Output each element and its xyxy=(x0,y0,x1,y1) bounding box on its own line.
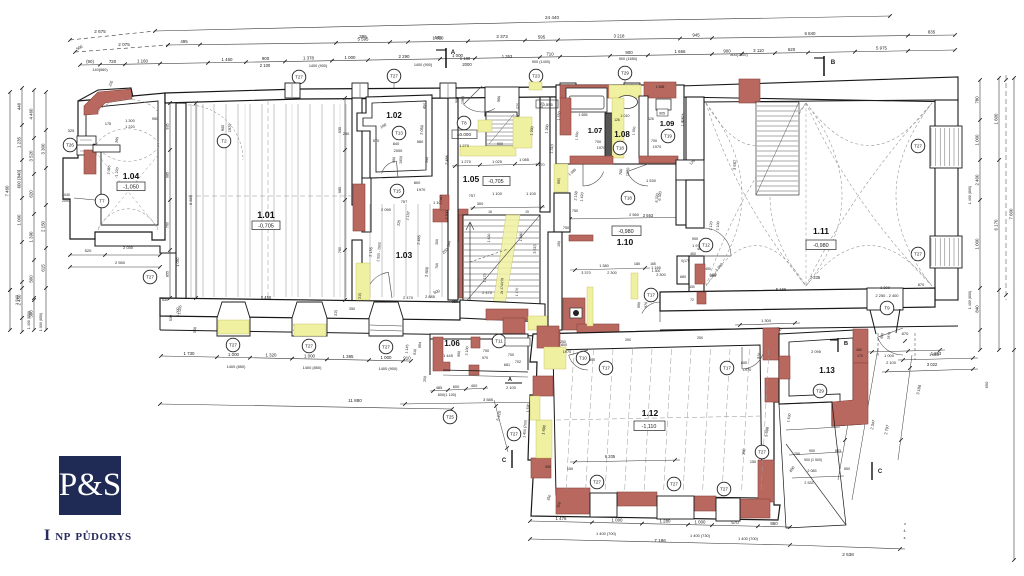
svg-text:800: 800 xyxy=(414,180,421,185)
svg-text:T23: T23 xyxy=(532,74,540,79)
svg-text:(90): (90) xyxy=(86,59,94,64)
svg-text:485: 485 xyxy=(436,385,443,390)
svg-text:700: 700 xyxy=(619,169,624,176)
svg-text:3 300: 3 300 xyxy=(40,143,45,155)
svg-text:2 158: 2 158 xyxy=(574,191,579,201)
svg-text:250: 250 xyxy=(423,376,428,382)
svg-text:5 450: 5 450 xyxy=(261,295,272,300)
svg-text:150: 150 xyxy=(689,285,695,289)
svg-text:T18: T18 xyxy=(624,196,632,201)
svg-text:1.12: 1.12 xyxy=(642,408,659,418)
svg-text:1 180: 1 180 xyxy=(460,56,471,61)
svg-text:1 220: 1 220 xyxy=(115,167,120,176)
svg-text:1 880: 1 880 xyxy=(519,232,523,241)
svg-text:780: 780 xyxy=(974,96,979,104)
svg-text:6 840: 6 840 xyxy=(805,31,817,36)
svg-text:1 200: 1 200 xyxy=(545,124,550,134)
svg-text:2 485: 2 485 xyxy=(417,235,422,245)
svg-text:2 095: 2 095 xyxy=(811,349,821,354)
svg-text:395: 395 xyxy=(359,34,367,39)
svg-text:650: 650 xyxy=(984,381,989,388)
svg-text:350: 350 xyxy=(349,307,355,311)
svg-text:2 250 - 2 400: 2 250 - 2 400 xyxy=(876,293,900,298)
svg-text:900: 900 xyxy=(692,237,698,241)
svg-text:935: 935 xyxy=(338,127,342,133)
svg-text:T27: T27 xyxy=(914,252,922,257)
svg-text:600: 600 xyxy=(453,384,460,389)
svg-text:T25: T25 xyxy=(446,415,454,420)
svg-text:1 000: 1 000 xyxy=(884,353,895,358)
svg-text:350: 350 xyxy=(545,465,551,469)
svg-text:140(560): 140(560) xyxy=(92,68,108,72)
svg-text:1.07: 1.07 xyxy=(588,126,603,135)
svg-text:835: 835 xyxy=(928,29,936,34)
svg-text:7 460: 7 460 xyxy=(4,185,9,197)
svg-text:1 655: 1 655 xyxy=(579,113,588,117)
svg-text:1 000: 1 000 xyxy=(345,55,357,60)
svg-text:2 100: 2 100 xyxy=(886,360,897,365)
svg-text:2 300: 2 300 xyxy=(656,273,666,277)
svg-text:-1,110: -1,110 xyxy=(642,424,657,430)
svg-text:3 370: 3 370 xyxy=(581,271,591,275)
svg-text:s.: s. xyxy=(904,536,907,540)
svg-text:595: 595 xyxy=(538,34,546,39)
svg-text:T27: T27 xyxy=(305,344,313,349)
svg-text:250: 250 xyxy=(697,336,703,340)
svg-text:440: 440 xyxy=(16,102,21,110)
svg-text:1 390: 1 390 xyxy=(28,231,33,243)
svg-text:2 300: 2 300 xyxy=(607,271,617,275)
svg-text:T12: T12 xyxy=(702,243,710,248)
svg-text:1 400 (850): 1 400 (850) xyxy=(27,311,31,329)
svg-text:2 100: 2 100 xyxy=(445,210,449,219)
svg-text:1 420: 1 420 xyxy=(580,192,585,201)
svg-text:T26: T26 xyxy=(66,143,74,148)
svg-text:900: 900 xyxy=(809,449,815,453)
svg-text:970: 970 xyxy=(482,356,488,360)
svg-text:315: 315 xyxy=(358,293,363,299)
svg-text:950: 950 xyxy=(152,117,158,121)
svg-text:910: 910 xyxy=(413,349,418,355)
svg-text:6 320: 6 320 xyxy=(658,191,663,201)
svg-text:300: 300 xyxy=(477,201,484,206)
svg-text:150: 150 xyxy=(750,460,756,464)
svg-text:3 218: 3 218 xyxy=(614,33,626,38)
svg-text:910: 910 xyxy=(403,355,411,360)
svg-text:840: 840 xyxy=(393,141,400,146)
svg-text:3 022: 3 022 xyxy=(927,362,938,367)
svg-text:250: 250 xyxy=(560,340,566,344)
svg-text:T13: T13 xyxy=(395,131,403,136)
svg-text:1 666: 1 666 xyxy=(675,49,687,54)
svg-text:z: z xyxy=(904,522,906,526)
svg-text:800: 800 xyxy=(637,302,642,308)
svg-text:570: 570 xyxy=(373,138,380,143)
svg-text:1.10: 1.10 xyxy=(617,237,634,247)
svg-text:757: 757 xyxy=(469,193,476,198)
svg-text:T27: T27 xyxy=(670,482,678,487)
svg-text:T10: T10 xyxy=(579,356,587,361)
svg-text:T27: T27 xyxy=(382,345,390,350)
svg-text:1 200: 1 200 xyxy=(530,126,535,136)
svg-text:2 150: 2 150 xyxy=(40,220,45,232)
svg-text:1 000: 1 000 xyxy=(695,519,707,524)
svg-text:500: 500 xyxy=(28,275,33,283)
svg-text:615: 615 xyxy=(40,264,45,272)
svg-text:1 863: 1 863 xyxy=(929,352,939,357)
svg-text:1950: 1950 xyxy=(399,156,404,164)
svg-text:1 100: 1 100 xyxy=(492,191,503,196)
svg-text:1 000: 1 000 xyxy=(176,307,180,316)
svg-text:900: 900 xyxy=(457,351,462,357)
svg-text:900: 900 xyxy=(221,125,225,131)
svg-text:2 090: 2 090 xyxy=(381,207,392,212)
svg-text:800: 800 xyxy=(589,358,595,362)
svg-text:T27: T27 xyxy=(390,74,398,79)
svg-text:3 373: 3 373 xyxy=(496,34,508,39)
svg-text:6 170: 6 170 xyxy=(993,219,998,231)
svg-text:680: 680 xyxy=(680,275,686,279)
svg-text:870: 870 xyxy=(918,282,925,287)
svg-text:3 110: 3 110 xyxy=(753,48,764,53)
svg-text:T17: T17 xyxy=(602,366,610,371)
svg-text:900: 900 xyxy=(497,142,503,146)
svg-text:495: 495 xyxy=(180,39,188,44)
svg-text:1 300: 1 300 xyxy=(761,318,772,323)
svg-text:325: 325 xyxy=(68,128,75,133)
svg-text:1 540: 1 540 xyxy=(14,294,19,305)
svg-text:3 585: 3 585 xyxy=(483,397,494,402)
svg-text:1.04: 1.04 xyxy=(123,171,140,181)
svg-text:C: C xyxy=(502,458,507,464)
svg-text:T27: T27 xyxy=(146,275,154,280)
svg-text:T2: T2 xyxy=(221,139,227,144)
svg-text:520: 520 xyxy=(85,248,92,253)
svg-text:750: 750 xyxy=(563,226,569,230)
svg-text:1.11: 1.11 xyxy=(813,226,829,236)
svg-text:2000: 2000 xyxy=(394,148,403,153)
svg-text:900: 900 xyxy=(455,97,459,103)
svg-text:855: 855 xyxy=(165,271,169,277)
svg-text:1 270: 1 270 xyxy=(461,159,472,164)
svg-text:1 395: 1 395 xyxy=(343,354,355,359)
svg-text:883: 883 xyxy=(835,449,841,453)
svg-text:1 235: 1 235 xyxy=(16,136,21,148)
svg-text:72: 72 xyxy=(690,298,694,302)
svg-text:1.08: 1.08 xyxy=(614,130,630,139)
svg-text:1 000: 1 000 xyxy=(228,352,240,357)
svg-text:1400 (850): 1400 (850) xyxy=(303,365,323,370)
svg-text:1970: 1970 xyxy=(563,350,571,354)
svg-text:1 160: 1 160 xyxy=(137,58,149,63)
svg-text:2 470: 2 470 xyxy=(482,290,493,295)
svg-text:1 000: 1 000 xyxy=(974,238,979,250)
svg-text:2 100: 2 100 xyxy=(506,385,517,390)
svg-text:2 675: 2 675 xyxy=(94,29,106,34)
svg-text:T27: T27 xyxy=(510,432,518,437)
svg-text:900 (1 500): 900 (1 500) xyxy=(804,458,822,462)
svg-text:700: 700 xyxy=(435,263,439,269)
svg-text:1 400 (700): 1 400 (700) xyxy=(596,531,617,536)
svg-text:1 445: 1 445 xyxy=(443,353,453,358)
svg-text:230: 230 xyxy=(343,131,350,136)
svg-text:7 196: 7 196 xyxy=(654,538,666,543)
svg-text:1 400 (730): 1 400 (730) xyxy=(690,533,711,538)
svg-text:I np půdorys: I np půdorys xyxy=(44,527,132,544)
svg-text:315: 315 xyxy=(334,310,339,316)
svg-text:1400 (900): 1400 (900) xyxy=(379,366,399,371)
svg-text:T11: T11 xyxy=(495,339,503,344)
svg-text:T15: T15 xyxy=(393,189,401,194)
svg-text:620: 620 xyxy=(28,190,33,198)
svg-text:2 055: 2 055 xyxy=(107,165,112,174)
svg-text:905: 905 xyxy=(659,112,665,116)
svg-text:760: 760 xyxy=(165,222,169,228)
svg-text:1 378: 1 378 xyxy=(303,56,315,61)
svg-text:1 000: 1 000 xyxy=(16,214,21,226)
svg-text:T27: T27 xyxy=(720,487,728,492)
svg-text:2 100: 2 100 xyxy=(260,63,271,68)
svg-text:1.13: 1.13 xyxy=(819,366,835,375)
svg-text:2 563: 2 563 xyxy=(643,213,654,218)
svg-text:1 000: 1 000 xyxy=(381,355,393,360)
svg-text:1 100: 1 100 xyxy=(526,191,537,196)
svg-text:1 600: 1 600 xyxy=(993,113,998,125)
svg-text:2 550: 2 550 xyxy=(115,260,126,265)
svg-text:864: 864 xyxy=(418,342,423,348)
svg-text:1970: 1970 xyxy=(626,168,631,177)
svg-text:1 040: 1 040 xyxy=(439,195,443,204)
svg-text:2 100: 2 100 xyxy=(465,346,470,355)
svg-text:126: 126 xyxy=(648,117,654,121)
svg-text:1 173: 1 173 xyxy=(483,273,487,282)
svg-text:970: 970 xyxy=(644,302,649,308)
svg-text:450: 450 xyxy=(705,267,711,271)
svg-text:1 000: 1 000 xyxy=(304,353,316,358)
svg-text:1 550: 1 550 xyxy=(575,131,580,140)
svg-text:2 400: 2 400 xyxy=(974,174,979,186)
svg-text:2 083: 2 083 xyxy=(807,469,816,473)
svg-text:2000: 2000 xyxy=(462,62,472,67)
svg-text:750: 750 xyxy=(572,209,578,213)
svg-text:6 205: 6 205 xyxy=(605,454,616,459)
svg-text:2 885: 2 885 xyxy=(425,294,435,299)
svg-text:1 400 (700): 1 400 (700) xyxy=(738,536,759,541)
svg-text:1970: 1970 xyxy=(597,146,605,150)
svg-text:2 290: 2 290 xyxy=(399,54,411,59)
svg-text:450: 450 xyxy=(856,348,862,352)
svg-text:2 155: 2 155 xyxy=(368,247,374,257)
svg-text:5 975: 5 975 xyxy=(876,46,888,51)
svg-text:-0,980: -0,980 xyxy=(813,243,828,249)
svg-text:1 730: 1 730 xyxy=(184,351,196,356)
svg-text:945: 945 xyxy=(692,32,700,37)
svg-text:175: 175 xyxy=(105,122,111,126)
svg-text:170: 170 xyxy=(857,354,863,358)
svg-text:T19: T19 xyxy=(664,134,672,139)
svg-text:250: 250 xyxy=(452,300,458,304)
svg-text:2 538: 2 538 xyxy=(842,552,854,557)
svg-text:3 515: 3 515 xyxy=(533,244,537,253)
svg-text:3 667: 3 667 xyxy=(732,159,738,170)
svg-text:1 550: 1 550 xyxy=(632,126,637,135)
svg-text:450: 450 xyxy=(690,252,696,256)
svg-text:2 075: 2 075 xyxy=(118,42,130,47)
svg-text:757: 757 xyxy=(401,199,408,204)
svg-text:1 310: 1 310 xyxy=(550,144,555,153)
svg-text:1.01: 1.01 xyxy=(257,210,275,220)
svg-text:650: 650 xyxy=(844,467,850,471)
svg-text:935: 935 xyxy=(165,123,169,129)
svg-text:700: 700 xyxy=(483,349,489,353)
svg-text:1 085: 1 085 xyxy=(519,157,529,162)
svg-text:1960: 1960 xyxy=(461,96,465,104)
svg-text:2 533: 2 533 xyxy=(804,481,813,485)
svg-text:1 270: 1 270 xyxy=(459,143,470,148)
svg-text:575: 575 xyxy=(516,103,521,109)
svg-text:B: B xyxy=(831,59,836,66)
svg-text:1 000: 1 000 xyxy=(974,134,979,146)
svg-text:4.: 4. xyxy=(904,529,907,533)
svg-text:1 460: 1 460 xyxy=(222,57,234,62)
svg-text:T29: T29 xyxy=(621,71,629,76)
svg-text:445: 445 xyxy=(434,35,442,40)
svg-text:180: 180 xyxy=(634,262,640,266)
svg-text:750: 750 xyxy=(794,452,800,456)
svg-text:1 170: 1 170 xyxy=(515,288,519,297)
svg-text:A: A xyxy=(451,49,456,56)
svg-text:700: 700 xyxy=(508,353,514,357)
svg-text:24 440: 24 440 xyxy=(545,15,559,20)
svg-text:1 000 (850): 1 000 (850) xyxy=(39,313,43,331)
svg-text:1 145: 1 145 xyxy=(405,344,410,353)
svg-text:1 220: 1 220 xyxy=(125,125,135,129)
svg-text:580: 580 xyxy=(417,139,424,144)
svg-text:1 300: 1 300 xyxy=(652,269,661,273)
svg-text:530: 530 xyxy=(169,315,173,321)
svg-text:-0,705: -0,705 xyxy=(258,224,274,230)
svg-text:7 335: 7 335 xyxy=(810,275,821,280)
svg-text:19: 19 xyxy=(525,210,529,214)
svg-text:1 380: 1 380 xyxy=(599,264,609,268)
svg-text:-0,980: -0,980 xyxy=(618,229,633,235)
svg-text:720: 720 xyxy=(109,59,117,64)
svg-text:T27: T27 xyxy=(295,75,303,80)
svg-text:6 665: 6 665 xyxy=(188,195,193,205)
svg-text:1 120: 1 120 xyxy=(709,221,714,230)
svg-text:T17: T17 xyxy=(647,293,655,298)
svg-text:2 050: 2 050 xyxy=(419,124,425,135)
svg-text:11 880: 11 880 xyxy=(348,398,362,403)
svg-text:126: 126 xyxy=(614,118,620,122)
svg-text:900 (1400): 900 (1400) xyxy=(532,60,551,64)
svg-text:700: 700 xyxy=(595,140,601,144)
svg-text:700: 700 xyxy=(651,139,657,143)
svg-text:1 300: 1 300 xyxy=(125,119,135,123)
svg-text:960: 960 xyxy=(497,96,502,102)
svg-text:2 100: 2 100 xyxy=(716,221,721,230)
svg-text:1 270: 1 270 xyxy=(535,163,544,167)
svg-text:100: 100 xyxy=(557,241,562,247)
svg-text:870: 870 xyxy=(902,331,909,336)
svg-text:1 010: 1 010 xyxy=(621,114,630,118)
svg-text:575: 575 xyxy=(540,102,545,108)
svg-text:C: C xyxy=(878,469,883,475)
svg-text:T27: T27 xyxy=(229,343,237,348)
svg-text:340: 340 xyxy=(425,157,430,163)
svg-text:T7: T7 xyxy=(99,199,105,204)
svg-text:2 470: 2 470 xyxy=(403,295,414,300)
svg-text:900: 900 xyxy=(625,50,633,55)
svg-text:1400 (900): 1400 (900) xyxy=(414,63,433,67)
svg-text:1.06: 1.06 xyxy=(444,339,460,348)
svg-text:165: 165 xyxy=(650,262,656,266)
svg-text:900: 900 xyxy=(262,56,270,61)
svg-text:550: 550 xyxy=(193,327,198,333)
svg-text:840: 840 xyxy=(974,305,979,313)
svg-text:1970: 1970 xyxy=(417,187,426,192)
svg-text:985: 985 xyxy=(338,187,342,193)
svg-text:702: 702 xyxy=(515,360,521,364)
svg-text:1.09: 1.09 xyxy=(660,119,675,128)
svg-text:1400 (900): 1400 (900) xyxy=(309,64,328,68)
svg-text:250: 250 xyxy=(625,338,631,342)
svg-text:1 550: 1 550 xyxy=(557,111,562,120)
svg-text:T29: T29 xyxy=(816,389,824,394)
svg-text:5 166: 5 166 xyxy=(776,287,787,292)
svg-text:3 520: 3 520 xyxy=(28,150,33,162)
svg-text:600 (840): 600 (840) xyxy=(16,169,21,188)
svg-text:T18: T18 xyxy=(616,146,624,151)
svg-text:620: 620 xyxy=(788,47,796,52)
svg-text:7 600: 7 600 xyxy=(1008,208,1013,220)
svg-text:B: B xyxy=(844,341,848,347)
svg-text:1 300: 1 300 xyxy=(880,285,891,290)
svg-text:860: 860 xyxy=(770,521,778,526)
svg-text:P&S: P&S xyxy=(59,467,121,503)
svg-text:18: 18 xyxy=(488,210,492,214)
svg-text:T17: T17 xyxy=(723,366,731,371)
svg-text:400: 400 xyxy=(471,383,478,388)
svg-text:2x 174/279: 2x 174/279 xyxy=(500,278,505,295)
svg-text:T9: T9 xyxy=(884,306,890,311)
svg-text:1 353: 1 353 xyxy=(502,54,513,59)
svg-text:760: 760 xyxy=(338,247,342,253)
svg-text:710: 710 xyxy=(546,51,554,56)
svg-text:1 975: 1 975 xyxy=(681,113,686,122)
svg-text:T8: T8 xyxy=(461,121,467,126)
svg-text:1970: 1970 xyxy=(653,145,661,149)
svg-text:1.03: 1.03 xyxy=(396,250,413,260)
svg-text:681: 681 xyxy=(504,363,510,367)
svg-text:1 320: 1 320 xyxy=(266,353,278,358)
svg-text:2 600: 2 600 xyxy=(424,266,430,277)
svg-text:2 030: 2 030 xyxy=(123,245,134,250)
svg-text:1 025: 1 025 xyxy=(492,159,502,164)
svg-text:1 620: 1 620 xyxy=(487,233,491,242)
svg-text:1.05: 1.05 xyxy=(463,174,480,184)
svg-text:-0,705: -0,705 xyxy=(488,179,503,185)
svg-text:1 050: 1 050 xyxy=(176,257,180,266)
svg-text:T27: T27 xyxy=(914,144,922,149)
svg-text:1 400 (800): 1 400 (800) xyxy=(968,291,972,309)
svg-text:900 (1650): 900 (1650) xyxy=(619,57,638,61)
svg-text:1 400 (800): 1 400 (800) xyxy=(968,186,972,204)
svg-text:1 530: 1 530 xyxy=(646,178,657,183)
svg-text:805: 805 xyxy=(557,178,562,184)
svg-text:T27: T27 xyxy=(593,480,601,485)
svg-text:1400 (850): 1400 (850) xyxy=(227,364,247,369)
